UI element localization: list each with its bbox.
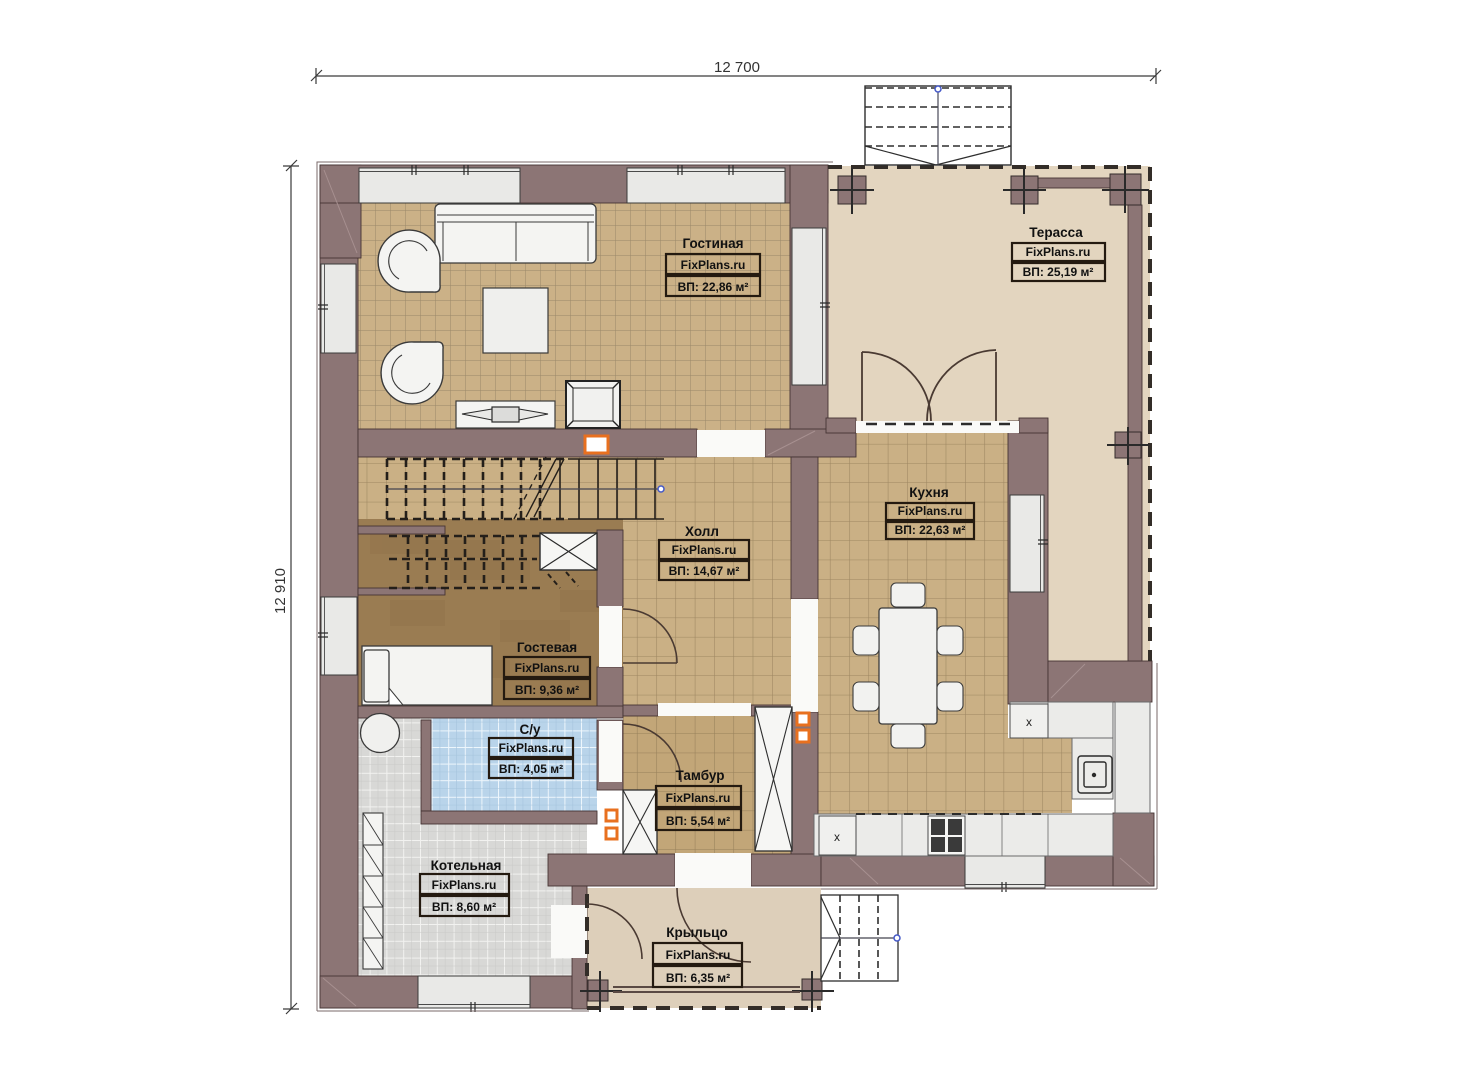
svg-text:12 700: 12 700 bbox=[714, 59, 760, 76]
svg-text:FixPlans.ru: FixPlans.ru bbox=[432, 878, 497, 892]
svg-text:С/у: С/у bbox=[519, 722, 541, 737]
svg-text:FixPlans.ru: FixPlans.ru bbox=[666, 948, 731, 962]
svg-text:ВП: 5,54 м²: ВП: 5,54 м² bbox=[666, 814, 730, 828]
svg-text:FixPlans.ru: FixPlans.ru bbox=[1026, 245, 1091, 259]
svg-text:FixPlans.ru: FixPlans.ru bbox=[666, 791, 731, 805]
svg-text:ВП: 22,86 м²: ВП: 22,86 м² bbox=[678, 280, 749, 294]
svg-text:FixPlans.ru: FixPlans.ru bbox=[681, 258, 746, 272]
svg-text:Котельная: Котельная bbox=[431, 858, 502, 873]
svg-text:Крыльцо: Крыльцо bbox=[666, 925, 727, 940]
svg-text:ВП: 9,36 м²: ВП: 9,36 м² bbox=[515, 683, 579, 697]
svg-text:12 910: 12 910 bbox=[272, 568, 289, 614]
svg-text:ВП: 25,19 м²: ВП: 25,19 м² bbox=[1023, 265, 1094, 279]
svg-text:x: x bbox=[834, 830, 840, 844]
svg-text:Тамбур: Тамбур bbox=[676, 768, 725, 783]
svg-text:FixPlans.ru: FixPlans.ru bbox=[515, 661, 580, 675]
svg-text:Холл: Холл bbox=[685, 524, 719, 539]
svg-text:Кухня: Кухня bbox=[909, 485, 948, 500]
svg-text:x: x bbox=[1026, 715, 1032, 729]
svg-text:ВП: 6,35 м²: ВП: 6,35 м² bbox=[666, 971, 730, 985]
svg-text:FixPlans.ru: FixPlans.ru bbox=[672, 543, 737, 557]
svg-text:ВП: 22,63 м²: ВП: 22,63 м² bbox=[895, 523, 966, 537]
svg-text:FixPlans.ru: FixPlans.ru bbox=[499, 741, 564, 755]
svg-text:Гостиная: Гостиная bbox=[682, 236, 743, 251]
svg-text:Терасса: Терасса bbox=[1029, 225, 1083, 240]
svg-text:ВП: 4,05 м²: ВП: 4,05 м² bbox=[499, 762, 563, 776]
svg-text:ВП: 8,60 м²: ВП: 8,60 м² bbox=[432, 900, 496, 914]
svg-text:Гостевая: Гостевая bbox=[517, 640, 577, 655]
svg-text:ВП: 14,67 м²: ВП: 14,67 м² bbox=[669, 564, 740, 578]
svg-text:FixPlans.ru: FixPlans.ru bbox=[898, 504, 963, 518]
